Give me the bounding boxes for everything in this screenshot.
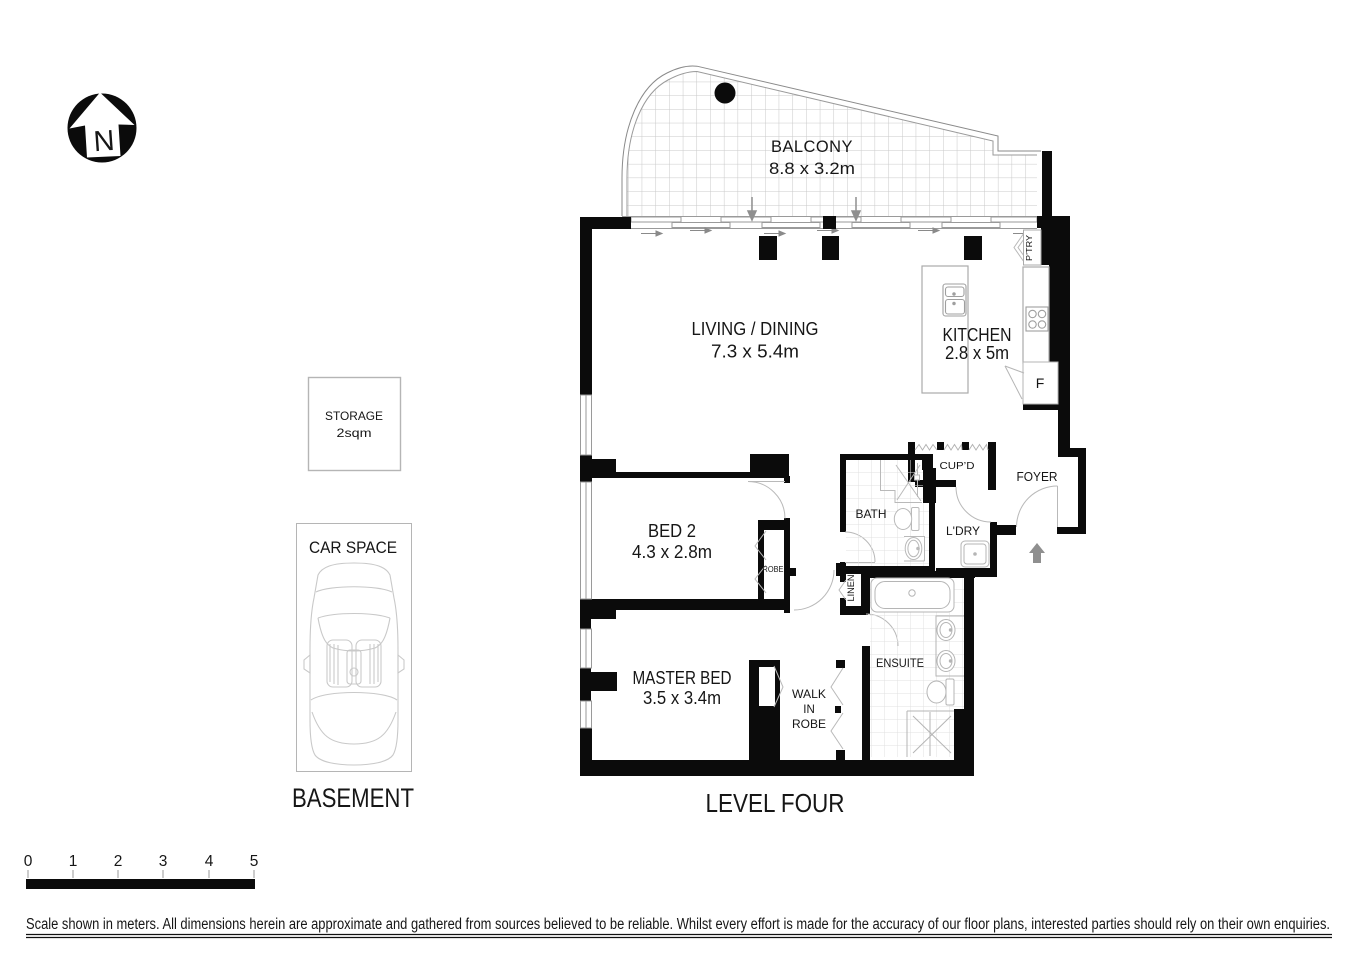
svg-text:7.3 x 5.4m: 7.3 x 5.4m xyxy=(711,342,799,362)
svg-text:IN: IN xyxy=(803,704,815,716)
svg-text:FOYER: FOYER xyxy=(1017,470,1058,484)
svg-text:ENSUITE: ENSUITE xyxy=(876,656,924,670)
svg-text:WALK: WALK xyxy=(792,689,826,701)
svg-text:KITCHEN: KITCHEN xyxy=(943,325,1012,345)
svg-text:P’TRY: P’TRY xyxy=(1024,235,1034,261)
svg-text:CAR SPACE: CAR SPACE xyxy=(309,538,397,557)
svg-text:N: N xyxy=(92,125,115,158)
svg-text:3: 3 xyxy=(159,853,168,870)
svg-text:F: F xyxy=(1036,375,1045,391)
svg-text:1: 1 xyxy=(69,853,78,870)
svg-text:2.8 x 5m: 2.8 x 5m xyxy=(945,343,1009,363)
svg-text:0: 0 xyxy=(24,853,33,870)
svg-text:8.8 x 3.2m: 8.8 x 3.2m xyxy=(769,159,855,178)
svg-text:ROBE: ROBE xyxy=(792,719,826,731)
svg-text:BED 2: BED 2 xyxy=(648,521,696,541)
svg-text:ROBE: ROBE xyxy=(763,564,784,574)
svg-text:4.3 x 2.8m: 4.3 x 2.8m xyxy=(632,542,712,562)
svg-text:LIVING / DINING: LIVING / DINING xyxy=(692,319,819,339)
svg-text:Scale shown in meters. All dim: Scale shown in meters. All dimensions he… xyxy=(26,916,1330,933)
svg-text:BASEMENT: BASEMENT xyxy=(292,783,414,813)
svg-text:LEVEL FOUR: LEVEL FOUR xyxy=(706,790,845,818)
svg-text:3.5 x 3.4m: 3.5 x 3.4m xyxy=(643,688,721,708)
svg-text:L'DRY: L'DRY xyxy=(946,524,980,538)
svg-text:MASTER BED: MASTER BED xyxy=(633,668,732,688)
svg-text:4: 4 xyxy=(205,853,214,870)
svg-text:STORAGE: STORAGE xyxy=(325,409,383,423)
svg-text:BALCONY: BALCONY xyxy=(771,137,853,156)
svg-text:BATH: BATH xyxy=(856,507,887,521)
svg-text:2sqm: 2sqm xyxy=(337,426,372,440)
svg-text:2: 2 xyxy=(114,853,123,870)
svg-text:CUP’D: CUP’D xyxy=(940,461,975,472)
svg-text:LINEN: LINEN xyxy=(846,575,856,602)
svg-text:5: 5 xyxy=(250,853,259,870)
